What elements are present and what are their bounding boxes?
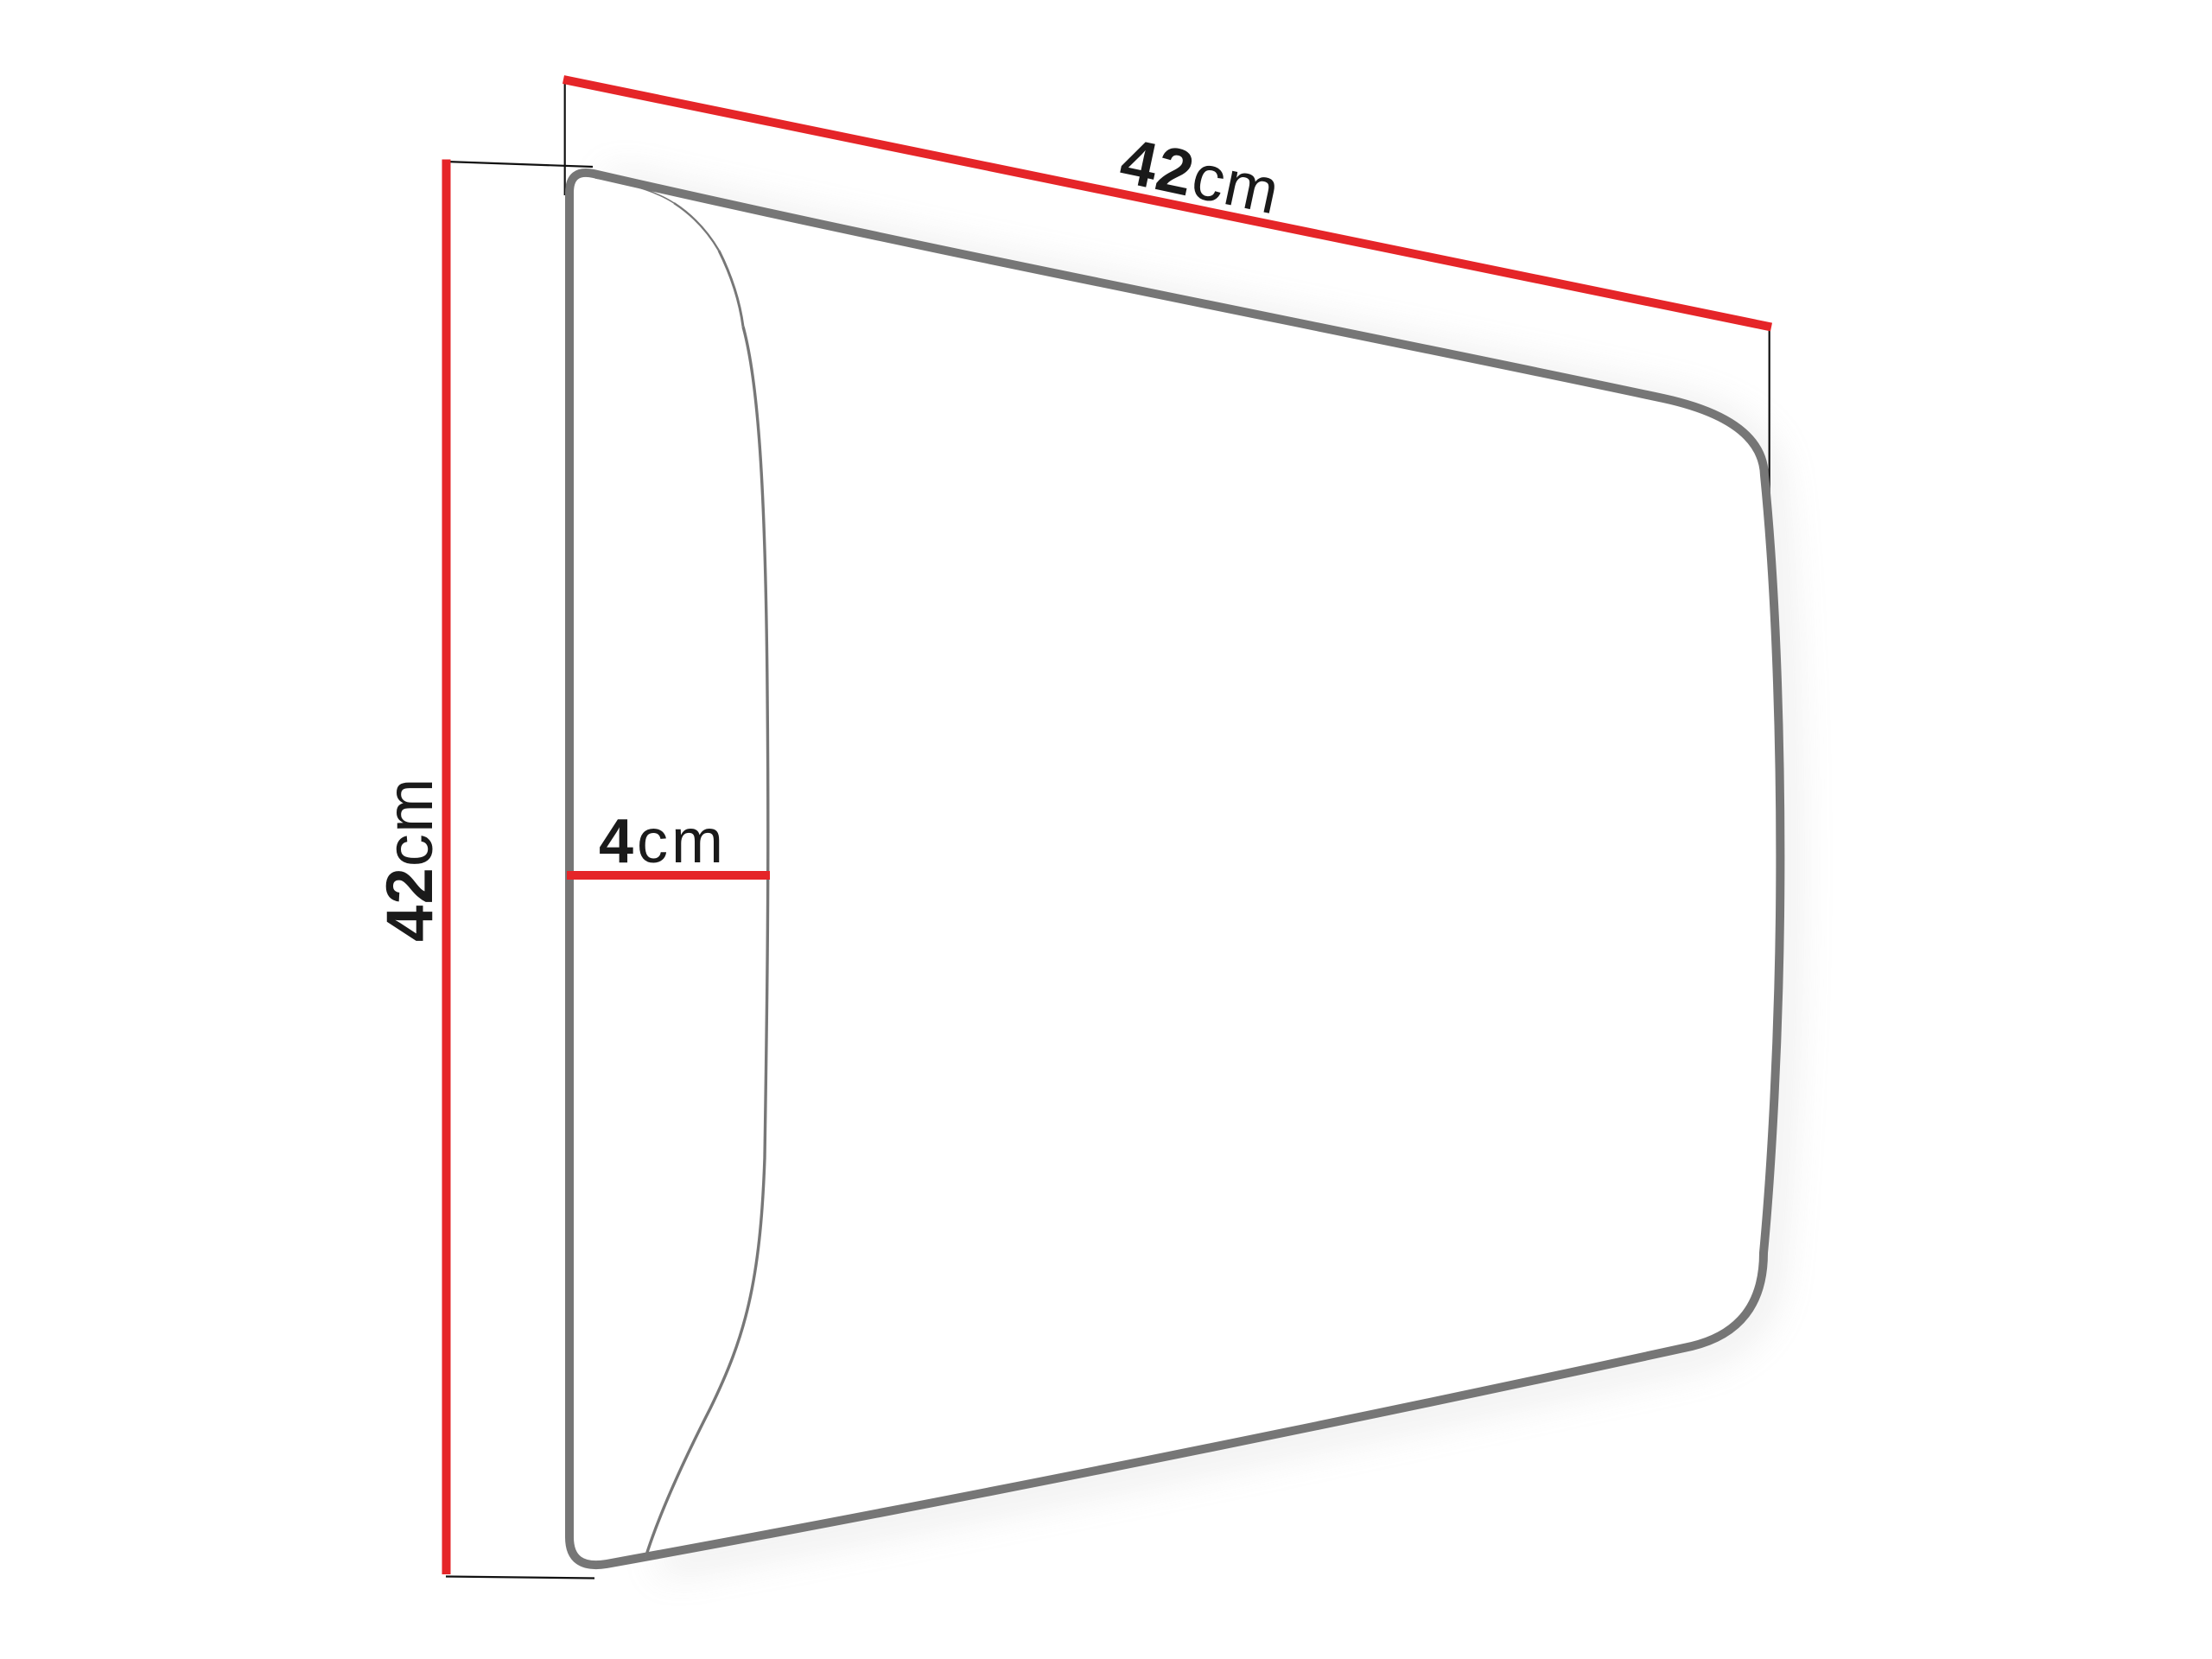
svg-text:4cm: 4cm — [599, 807, 727, 876]
svg-text:42cm: 42cm — [373, 777, 447, 942]
